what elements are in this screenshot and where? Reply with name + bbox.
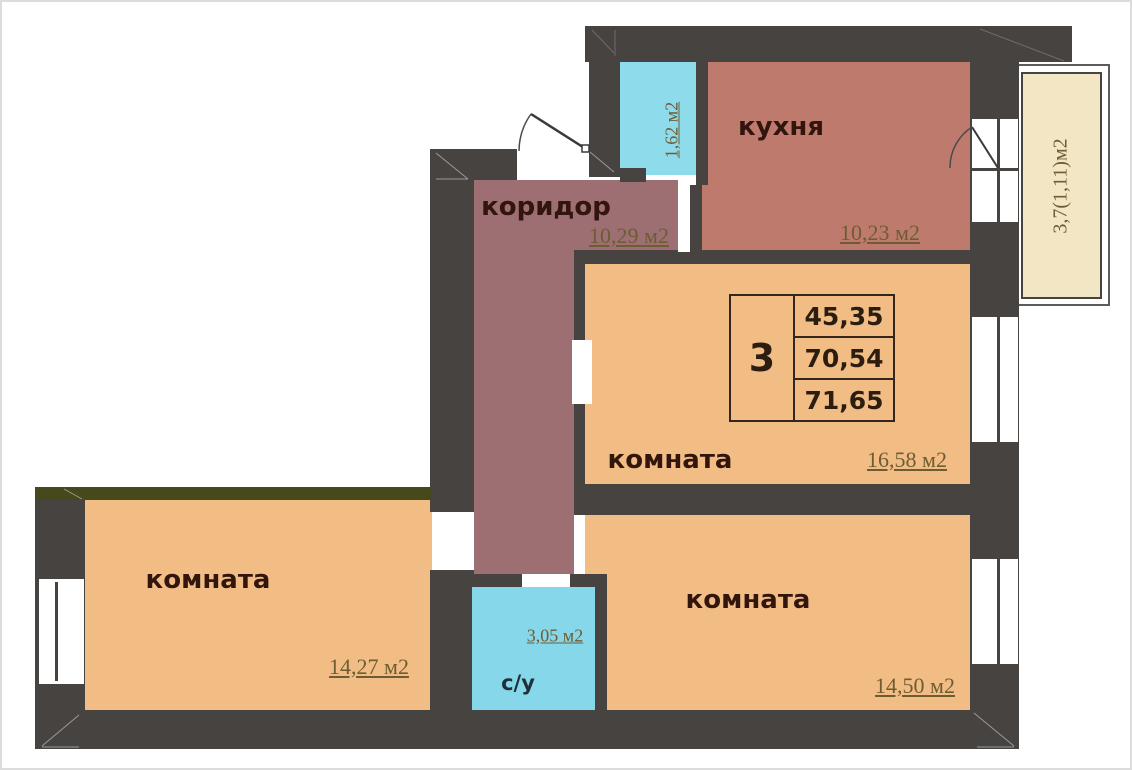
wall-segment <box>620 168 646 182</box>
kitchen-door-opening <box>678 185 690 252</box>
window-frame <box>997 559 1000 664</box>
area-value-main: 70,54 <box>795 338 893 380</box>
bathroom-area: 3,05 м2 <box>527 626 583 647</box>
rooms-count: 3 <box>731 296 795 420</box>
wall-segment <box>585 26 1072 62</box>
room-top-door-opening <box>572 340 592 404</box>
area-value-living: 45,35 <box>795 296 893 338</box>
room-right-window <box>972 559 1018 664</box>
apartment-info-box: 3 45,35 70,54 71,65 <box>729 294 895 422</box>
corridor-fill-lower <box>474 250 574 577</box>
wall-segment <box>595 574 607 710</box>
room-left-window <box>39 579 84 684</box>
wall-accent-segment <box>35 487 432 500</box>
room-top-area: 16,58 м2 <box>867 447 947 473</box>
room-right-area: 14,50 м2 <box>875 673 955 699</box>
window-frame <box>972 168 1018 171</box>
wall-segment <box>430 570 474 710</box>
bathroom-door-opening <box>522 574 570 587</box>
corridor-label: коридор <box>481 192 611 222</box>
wall-segment <box>696 62 708 185</box>
wall-segment <box>574 250 970 264</box>
room-right-label: комната <box>686 585 811 615</box>
bathroom-label: с/у <box>501 671 535 695</box>
corridor-area: 10,29 м2 <box>589 223 669 249</box>
wall-segment <box>690 185 702 252</box>
wall-segment <box>430 149 474 512</box>
storage-room-fill <box>620 62 696 175</box>
floor-plan: кухня 10,23 м2 коридор 10,29 м2 комната … <box>0 0 1132 770</box>
room-top-label: комната <box>608 445 733 475</box>
wall-segment <box>589 26 620 177</box>
wall-segment <box>430 574 607 587</box>
window-frame <box>997 317 1000 442</box>
room-left-area: 14,27 м2 <box>329 654 409 680</box>
room-left-label: комната <box>146 565 271 595</box>
wall-segment <box>35 710 1019 749</box>
balcony-area: 3,7(1,11)м2 <box>1050 138 1073 233</box>
kitchen-label: кухня <box>738 112 824 142</box>
room-top-window <box>972 317 1018 442</box>
kitchen-area: 10,23 м2 <box>840 220 920 246</box>
window-frame <box>55 582 58 681</box>
storage-area: 1,62 м2 <box>662 102 683 158</box>
wall-segment <box>574 484 970 515</box>
area-value-total: 71,65 <box>795 380 893 420</box>
balcony-door-window <box>972 119 1018 222</box>
kitchen-fill <box>702 62 970 252</box>
